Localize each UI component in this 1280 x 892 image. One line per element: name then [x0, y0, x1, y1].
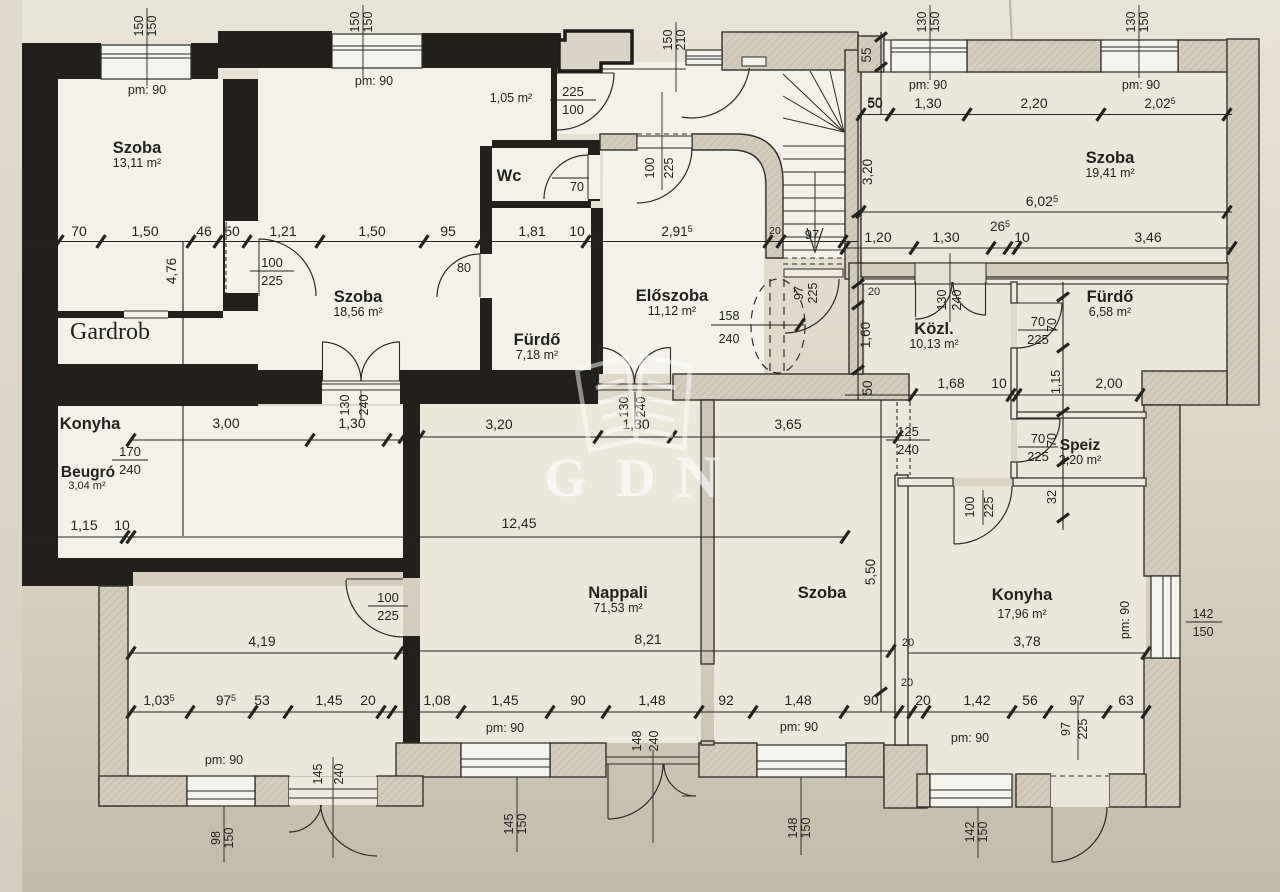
- svg-text:pm: 90: pm: 90: [128, 83, 166, 97]
- svg-text:Nappali: Nappali: [588, 584, 648, 602]
- svg-text:130: 130: [915, 12, 929, 33]
- svg-text:1,30: 1,30: [914, 95, 941, 111]
- svg-text:1,81: 1,81: [518, 223, 545, 239]
- svg-text:Szoba: Szoba: [113, 139, 162, 157]
- svg-text:Szoba: Szoba: [334, 288, 383, 306]
- svg-text:pm: 90: pm: 90: [780, 720, 818, 734]
- svg-text:130: 130: [338, 395, 352, 416]
- svg-text:150: 150: [132, 16, 146, 37]
- svg-text:70: 70: [1031, 314, 1045, 329]
- svg-text:Szoba: Szoba: [1086, 149, 1135, 167]
- svg-text:70: 70: [1045, 433, 1059, 447]
- svg-text:Előszoba: Előszoba: [636, 287, 709, 305]
- svg-text:Fürdő: Fürdő: [514, 331, 561, 349]
- svg-text:20: 20: [902, 637, 914, 649]
- svg-text:19,41 m²: 19,41 m²: [1085, 166, 1134, 180]
- svg-text:240: 240: [719, 332, 740, 346]
- svg-text:pm: 90: pm: 90: [355, 74, 393, 88]
- svg-text:50: 50: [860, 380, 875, 395]
- svg-text:225: 225: [1027, 332, 1049, 347]
- svg-text:240: 240: [357, 395, 371, 416]
- svg-text:148: 148: [630, 731, 644, 752]
- svg-text:71,53 m²: 71,53 m²: [593, 601, 642, 615]
- svg-text:10: 10: [1014, 229, 1030, 245]
- svg-text:150: 150: [361, 12, 375, 33]
- svg-text:2,20 m²: 2,20 m²: [1059, 453, 1101, 467]
- svg-text:Speiz: Speiz: [1060, 437, 1101, 454]
- svg-text:170: 170: [119, 444, 141, 459]
- svg-text:1,68: 1,68: [937, 375, 964, 391]
- svg-text:125: 125: [897, 424, 919, 439]
- svg-text:12,45: 12,45: [501, 515, 536, 531]
- svg-text:18,56 m²: 18,56 m²: [333, 305, 382, 319]
- svg-text:7,18 m²: 7,18 m²: [516, 348, 558, 362]
- svg-text:4,76: 4,76: [164, 258, 179, 284]
- svg-text:2,20: 2,20: [1020, 95, 1047, 111]
- svg-text:100: 100: [562, 102, 584, 117]
- svg-text:98: 98: [209, 831, 223, 845]
- svg-text:pm: 90: pm: 90: [486, 721, 524, 735]
- svg-text:20: 20: [915, 692, 931, 708]
- svg-text:1,48: 1,48: [638, 692, 665, 708]
- svg-text:20: 20: [360, 692, 376, 708]
- svg-text:4,19: 4,19: [248, 633, 275, 649]
- svg-text:100: 100: [963, 497, 977, 518]
- svg-text:150: 150: [348, 12, 362, 33]
- svg-text:1,45: 1,45: [491, 692, 518, 708]
- svg-text:6,58 m²: 6,58 m²: [1089, 305, 1131, 319]
- svg-text:90: 90: [570, 692, 586, 708]
- svg-text:1,15: 1,15: [1049, 370, 1063, 394]
- svg-text:1,60: 1,60: [858, 322, 873, 348]
- svg-text:G: G: [544, 447, 587, 508]
- svg-text:225: 225: [1027, 449, 1049, 464]
- svg-text:150: 150: [222, 828, 236, 849]
- svg-text:148: 148: [786, 818, 800, 839]
- svg-text:pm: 90: pm: 90: [909, 78, 947, 92]
- svg-text:Konyha: Konyha: [992, 586, 1053, 604]
- svg-text:pm: 90: pm: 90: [205, 753, 243, 767]
- svg-text:240: 240: [332, 764, 346, 785]
- svg-text:5,50: 5,50: [863, 559, 878, 585]
- svg-text:53: 53: [254, 692, 270, 708]
- svg-text:150: 150: [515, 814, 529, 835]
- svg-text:97: 97: [805, 227, 819, 242]
- svg-text:3,20: 3,20: [485, 416, 512, 432]
- svg-text:150: 150: [928, 12, 942, 33]
- svg-text:20: 20: [868, 286, 880, 298]
- svg-text:Konyha: Konyha: [60, 415, 121, 433]
- svg-text:1,05 m²: 1,05 m²: [490, 91, 532, 105]
- svg-text:92: 92: [718, 692, 734, 708]
- svg-text:145: 145: [311, 764, 325, 785]
- svg-text:80: 80: [457, 261, 471, 275]
- svg-text:pm: 90: pm: 90: [1118, 601, 1132, 639]
- svg-text:10: 10: [569, 223, 585, 239]
- svg-text:Közl.: Közl.: [914, 320, 953, 338]
- svg-text:130: 130: [935, 290, 949, 311]
- svg-text:225: 225: [662, 158, 676, 179]
- svg-text:Wc: Wc: [497, 167, 522, 185]
- svg-text:N: N: [676, 444, 719, 510]
- svg-text:240: 240: [647, 731, 661, 752]
- svg-text:210: 210: [674, 30, 688, 51]
- svg-text:225: 225: [806, 283, 820, 304]
- svg-text:240: 240: [897, 442, 919, 457]
- svg-text:100: 100: [377, 590, 399, 605]
- svg-text:3,04 m²: 3,04 m²: [68, 480, 106, 492]
- svg-text:56: 56: [1022, 692, 1038, 708]
- svg-text:10: 10: [114, 517, 130, 533]
- svg-text:100: 100: [643, 158, 657, 179]
- svg-text:2,00: 2,00: [1095, 375, 1122, 391]
- svg-text:1,50: 1,50: [131, 223, 158, 239]
- svg-text:3,20: 3,20: [860, 159, 875, 185]
- svg-text:3,65: 3,65: [774, 416, 801, 432]
- svg-text:150: 150: [145, 16, 159, 37]
- svg-text:3,46: 3,46: [1134, 229, 1161, 245]
- svg-text:1,20: 1,20: [864, 229, 891, 245]
- svg-text:pm: 90: pm: 90: [951, 731, 989, 745]
- svg-text:1,30: 1,30: [932, 229, 959, 245]
- svg-text:142: 142: [1193, 607, 1214, 621]
- svg-text:158: 158: [719, 309, 740, 323]
- svg-text:55: 55: [859, 47, 874, 62]
- svg-text:100: 100: [261, 255, 283, 270]
- svg-text:95: 95: [440, 223, 456, 239]
- svg-text:1,42: 1,42: [963, 692, 990, 708]
- svg-text:D: D: [616, 447, 656, 508]
- svg-text:142: 142: [963, 822, 977, 843]
- svg-text:3,00: 3,00: [212, 415, 239, 431]
- svg-text:8,21: 8,21: [634, 631, 661, 647]
- svg-text:10,13 m²: 10,13 m²: [909, 337, 958, 351]
- svg-text:97: 97: [792, 286, 806, 300]
- svg-text:97: 97: [1069, 692, 1085, 708]
- svg-text:32: 32: [1045, 490, 1059, 504]
- svg-text:1,45: 1,45: [315, 692, 342, 708]
- svg-text:70: 70: [570, 180, 584, 194]
- svg-text:63: 63: [1118, 692, 1134, 708]
- svg-text:150: 150: [1137, 12, 1151, 33]
- svg-text:46: 46: [196, 223, 212, 239]
- svg-text:150: 150: [1193, 625, 1214, 639]
- svg-text:20: 20: [769, 225, 781, 237]
- svg-text:225: 225: [377, 608, 399, 623]
- svg-text:1,48: 1,48: [784, 692, 811, 708]
- svg-text:1,15: 1,15: [70, 517, 97, 533]
- svg-text:145: 145: [502, 814, 516, 835]
- svg-text:10: 10: [991, 375, 1007, 391]
- svg-text:11,12 m²: 11,12 m²: [648, 304, 696, 318]
- svg-text:50: 50: [867, 95, 882, 110]
- svg-text:70: 70: [71, 223, 87, 239]
- svg-text:1,08: 1,08: [423, 692, 450, 708]
- svg-text:225: 225: [982, 497, 996, 518]
- svg-text:Beugró: Beugró: [61, 464, 115, 481]
- svg-text:13,11 m²: 13,11 m²: [113, 156, 161, 170]
- svg-text:225: 225: [261, 273, 283, 288]
- svg-text:1,30: 1,30: [338, 415, 365, 431]
- svg-text:1,21: 1,21: [269, 223, 296, 239]
- svg-text:150: 150: [661, 30, 675, 51]
- svg-text:Szoba: Szoba: [798, 584, 847, 602]
- svg-text:240: 240: [950, 290, 964, 311]
- svg-text:225: 225: [562, 84, 584, 99]
- svg-text:130: 130: [1124, 12, 1138, 33]
- svg-text:70: 70: [1031, 431, 1045, 446]
- svg-text:20: 20: [901, 677, 913, 689]
- svg-text:97: 97: [1059, 722, 1073, 736]
- svg-text:17,96 m²: 17,96 m²: [997, 607, 1046, 621]
- svg-text:225: 225: [1076, 719, 1090, 740]
- svg-text:1,50: 1,50: [358, 223, 385, 239]
- svg-text:pm: 90: pm: 90: [1122, 78, 1160, 92]
- svg-text:3,78: 3,78: [1013, 633, 1040, 649]
- svg-text:Gardrob: Gardrob: [70, 319, 150, 345]
- svg-text:150: 150: [976, 822, 990, 843]
- svg-text:150: 150: [799, 818, 813, 839]
- svg-text:Fürdő: Fürdő: [1087, 288, 1134, 306]
- svg-text:50: 50: [224, 223, 240, 239]
- svg-text:240: 240: [119, 462, 141, 477]
